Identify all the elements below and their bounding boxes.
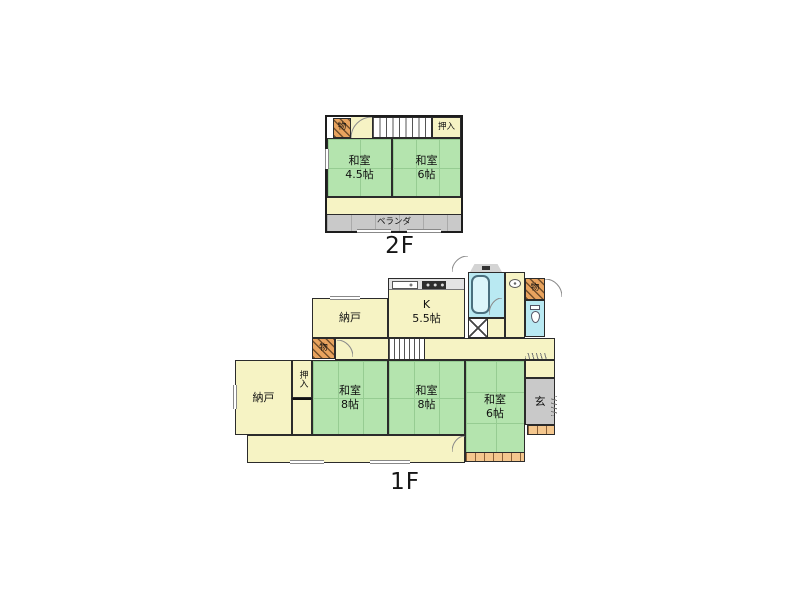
f1-kitchen-name: K [423, 298, 430, 312]
f2-window-mark [325, 149, 329, 169]
f1-window-mark [290, 460, 324, 464]
f2-plan: 物 押入 和室 4.5帖 和室 6帖 ベランダ [325, 115, 463, 233]
f1-closet-mono-top-label: 物 [531, 284, 540, 293]
f1-corridor [247, 435, 465, 463]
f2-closet-mono-label: 物 [338, 123, 347, 132]
kitchen-sink-icon [392, 281, 418, 289]
f1-closet-mono-small-label: 物 [319, 344, 328, 353]
toilet-icon [530, 305, 540, 310]
toilet-bowl-icon [531, 311, 540, 323]
f2-corridor [327, 197, 461, 214]
washbasin-icon [509, 279, 521, 288]
f1-genkan-hall [525, 360, 555, 378]
f2-closet-oshiire: 押入 [432, 117, 461, 138]
f1-closet-oshiire-label: 押入 [298, 370, 307, 388]
f1-room-washitsu-8a: 和室 8帖 [312, 360, 388, 435]
f2-washitsu-6-name: 和室 [416, 154, 438, 168]
f1-closet-mono-small: 物 [312, 338, 335, 359]
f1-genkan-step [527, 425, 555, 435]
f1-washitsu-8a-size: 8帖 [341, 398, 359, 412]
stove-icon [422, 281, 446, 289]
f1-kitchen-counter [389, 279, 464, 290]
f1-kitchen: K 5.5帖 [388, 278, 465, 338]
f2-stair-landing [351, 117, 372, 138]
f1-washitsu-6-step [465, 452, 525, 462]
hall-door-arc [337, 340, 353, 357]
window-mark [525, 353, 547, 359]
f1-hall-left [335, 338, 388, 360]
f1-nando-upper: 納戸 [312, 298, 388, 338]
f1-washitsu-6-name: 和室 [484, 393, 506, 407]
f1-oshiire-access [292, 398, 312, 435]
corridor-door-arc [452, 436, 465, 452]
f1-nando-upper-label: 納戸 [339, 311, 361, 325]
f1-hall-right [425, 338, 555, 360]
window-mark [551, 396, 557, 416]
f1-window-mark [330, 296, 360, 300]
f2-stairs [372, 117, 432, 138]
backdoor-arc [452, 256, 468, 272]
f1-nando-left-label: 納戸 [253, 391, 275, 405]
f2-washitsu-6-size: 6帖 [418, 168, 436, 182]
f2-floor-label: 2F [370, 233, 430, 259]
f1-stairs [388, 338, 425, 360]
f2-room-washitsu-6: 和室 6帖 [392, 138, 461, 197]
f1-laundry [468, 318, 488, 338]
f1-bath-access [488, 318, 505, 338]
f2-veranda-label: ベランダ [377, 218, 411, 227]
f1-bathroom [468, 272, 505, 318]
f1-window-mark [370, 460, 410, 464]
f1-washitsu-6-size: 6帖 [486, 407, 504, 421]
f2-washitsu-45-name: 和室 [349, 154, 371, 168]
f1-floor-label: 1F [375, 468, 435, 496]
f1-closet-mono-top: 物 [525, 278, 545, 300]
f1-washitsu-8b-size: 8帖 [418, 398, 436, 412]
f1-window-mark [233, 385, 237, 409]
bath-door-arc [489, 298, 502, 315]
f2-room-washitsu-45: 和室 4.5帖 [327, 138, 392, 197]
f1-room-washitsu-8b: 和室 8帖 [388, 360, 465, 435]
water-heater-icon [470, 264, 502, 272]
f1-nando-left: 納戸 [235, 360, 292, 435]
side-entrance-arc [545, 279, 562, 297]
f2-closet-mono: 物 [333, 118, 351, 138]
floorplan-canvas: 物 押入 和室 4.5帖 和室 6帖 ベランダ 2F [0, 0, 800, 600]
f2-landing-door-arc [351, 117, 372, 138]
f1-washroom [505, 272, 525, 338]
f2-closet-oshiire-label: 押入 [438, 123, 455, 132]
f1-room-washitsu-6: 和室 6帖 [465, 360, 525, 453]
f1-kitchen-size: 5.5帖 [412, 312, 441, 326]
f1-genkan-label: 玄 [535, 395, 546, 409]
f1-toilet [525, 300, 545, 337]
f2-washitsu-45-size: 4.5帖 [345, 168, 374, 182]
f1-washitsu-8a-name: 和室 [339, 384, 361, 398]
f1-closet-oshiire: 押入 [292, 360, 312, 398]
bathtub-icon [471, 275, 490, 314]
f1-washitsu-8b-name: 和室 [416, 384, 438, 398]
